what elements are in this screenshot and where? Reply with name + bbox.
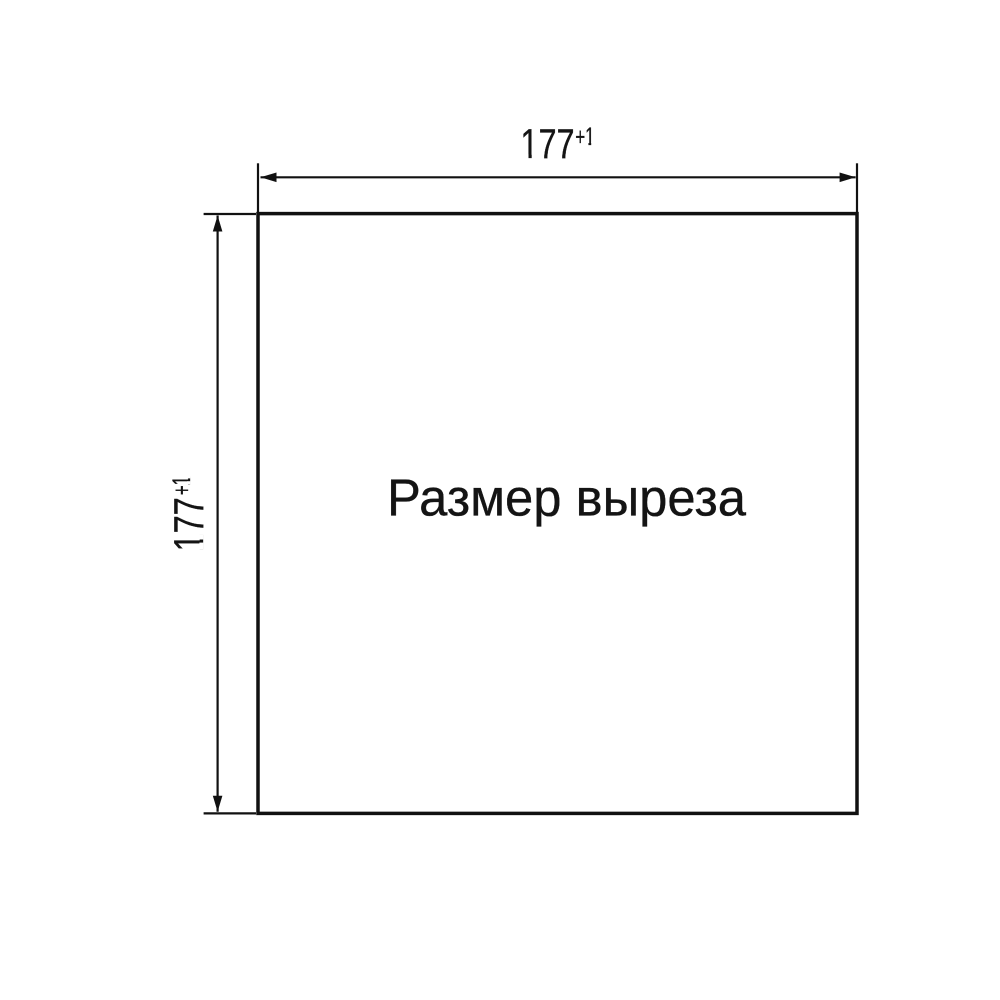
svg-text:177: 177 [166,497,212,551]
svg-text:+1: +1 [575,123,595,151]
svg-text:177: 177 [520,121,574,167]
svg-text:+1: +1 [168,476,196,496]
svg-text:Размер выреза: Размер выреза [387,469,746,527]
